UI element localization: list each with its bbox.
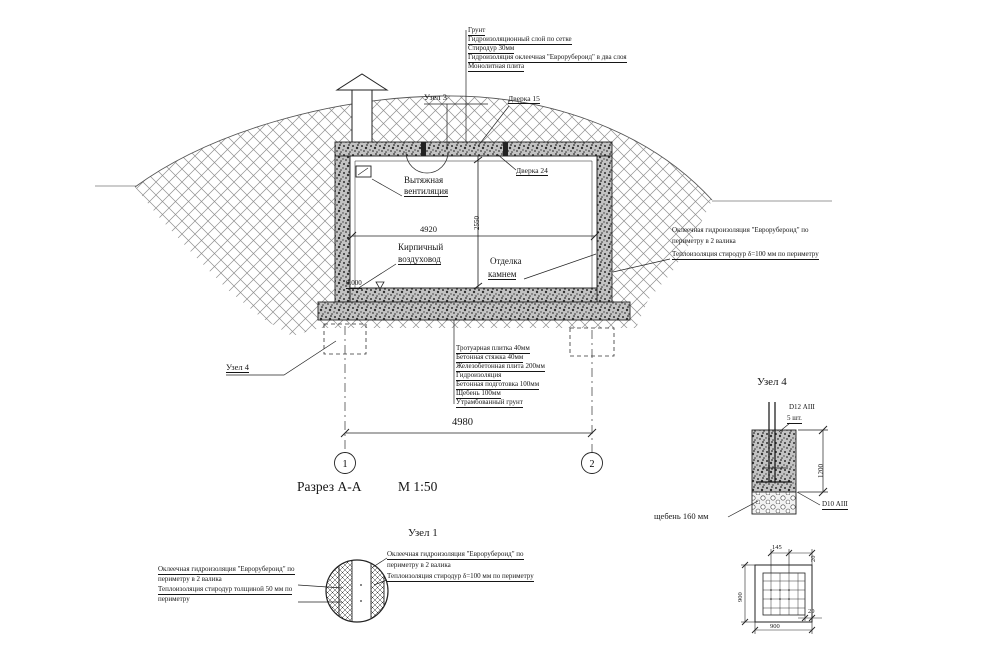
hatch-frame-left: [421, 142, 426, 156]
wall-note-2: периметру в 2 валика: [672, 238, 736, 246]
vent-chimney-cap: [337, 74, 387, 90]
node4-d10-leader: [797, 492, 820, 505]
exhaust-label-1: Вытяжная: [404, 175, 443, 185]
plan-offset-bottom-20: 20: [808, 608, 815, 615]
exhaust-label-2: вентиляция: [404, 186, 448, 197]
node3-label: Узел 3: [424, 93, 447, 102]
roof-slab: [335, 142, 612, 156]
level-mark-label: 0.000: [346, 280, 362, 289]
node4-rebar-count-label: 5 шт.: [787, 415, 802, 424]
plan-dim-bottom-900: 900: [770, 623, 780, 630]
floor-layer-7: Утрамбованный грунт: [456, 399, 523, 408]
node1-wall-section: [326, 558, 384, 624]
node1-right-leader1: [373, 558, 387, 567]
door-top-label: Дверка 15: [508, 95, 540, 104]
vent-chimney-shaft: [352, 90, 372, 143]
node4-title: Узел 4: [757, 376, 787, 388]
plan-dim-left-900: 900: [737, 592, 744, 602]
node4-rebar-bottom-label: D10 АIII: [822, 501, 848, 510]
plan-outer: [755, 565, 812, 622]
floor-slab: [350, 288, 597, 302]
duct-label-1: Кирпичный: [398, 242, 443, 252]
node4-rebar-top-label: D12 АIII: [789, 404, 815, 412]
node4-pier: [752, 430, 796, 492]
node1-title: Узел 1: [408, 527, 438, 539]
node1-right-3: Теплоизоляция стиродур δ=100 мм по перим…: [387, 573, 534, 582]
wall-note-1: Оклеечная гидроизоляция "Еврорубероид" п…: [672, 227, 809, 235]
foundation-slab: [318, 302, 630, 320]
wall-note-3: Теплоизоляция стиродур δ=100 мм по перим…: [672, 251, 819, 260]
node4-ref-label: Узел 4: [226, 363, 249, 373]
section-scale: М 1:50: [398, 480, 437, 494]
node1-left-4: периметру: [158, 596, 190, 604]
door-inner-label: Дверка 24: [516, 167, 548, 176]
duct-label-2: воздуховод: [398, 254, 441, 265]
hatch-frame-right: [503, 142, 508, 156]
plan-dim-145: 145: [772, 544, 782, 551]
dim-4920-label: 4920: [420, 225, 437, 234]
axis-number-2: 2: [590, 459, 595, 470]
finish-label-2: камнем: [488, 269, 516, 280]
plan-offset-top-20: 20: [810, 556, 817, 563]
node4-gravel-label: щебень 160 мм: [654, 512, 709, 521]
section-title: Разрез А-А: [297, 480, 361, 494]
node1-left-3: Теплоизоляция стиродур толщиной 50 мм по: [158, 586, 292, 595]
cellar-section-drawing: 1 2: [0, 0, 1000, 647]
finish-label-1: Отделка: [490, 256, 522, 266]
wall-right: [597, 156, 612, 302]
node1-left-1: Оклеечная гидроизоляция "Еврорубероид" п…: [158, 566, 295, 575]
axis-number-1: 1: [343, 459, 348, 470]
node1-left-2: периметру в 2 валика: [158, 576, 222, 584]
dim-4980-label: 4980: [452, 419, 473, 427]
node1-right-2: периметру в 2 валика: [387, 562, 451, 570]
node4-dim-1200-label: 1200: [818, 464, 826, 478]
dim-2550-label: 2550: [474, 216, 482, 230]
roof-layer-5: Монолитная плита: [468, 63, 524, 72]
node1-right-1: Оклеечная гидроизоляция "Еврорубероид" п…: [387, 551, 524, 560]
node4-gravel: [752, 492, 796, 514]
